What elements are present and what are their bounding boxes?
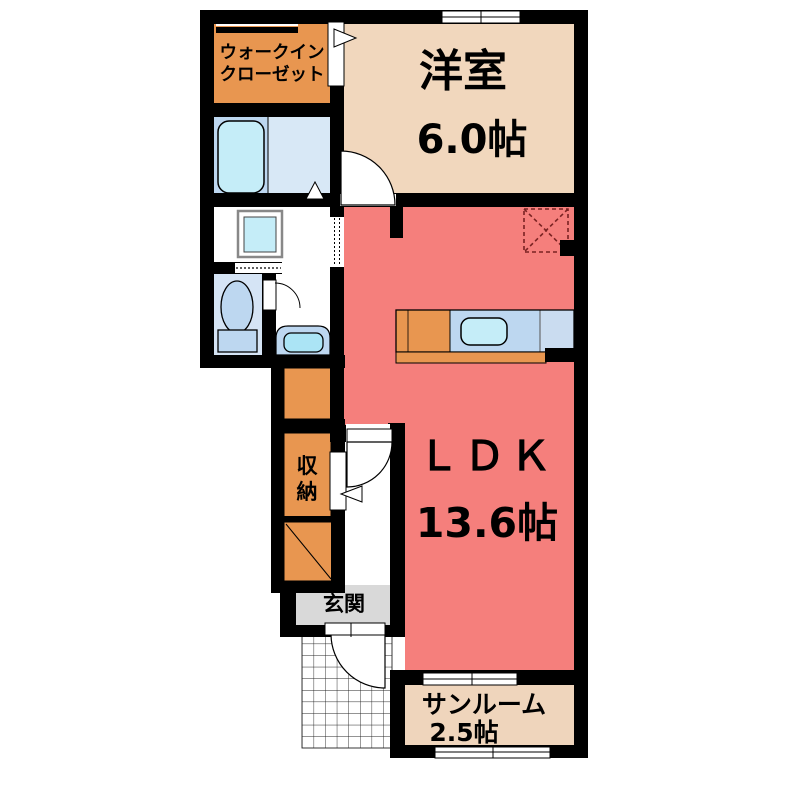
storage-label-char2: 納 [297, 480, 318, 504]
floor-plan-svg: ウォークイン クローゼット 洋室 6.0帖 ＬＤＫ 13.6帖 サンルーム 2.… [0, 0, 800, 800]
western-room-label: 洋室 [419, 46, 507, 97]
bathroom [214, 117, 330, 193]
storage-label-char1: 収 [297, 454, 319, 478]
window-western-top [442, 11, 520, 23]
ldk-size: 13.6帖 [416, 499, 558, 547]
ldk-label: ＬＤＫ [418, 432, 556, 480]
window-sunroom-top [423, 673, 517, 685]
washbasin-icon [276, 326, 330, 355]
floor-plan: ウォークイン クローゼット 洋室 6.0帖 ＬＤＫ 13.6帖 サンルーム 2.… [0, 0, 800, 800]
window-sunroom-bottom [435, 747, 550, 758]
western-room-size: 6.0帖 [417, 117, 528, 163]
washing-machine-icon [238, 211, 282, 257]
sunroom-size: 2.5帖 [429, 718, 498, 747]
shoe-cabinet [284, 522, 333, 581]
ldk-washroom-folding-door [330, 217, 344, 267]
sunroom-label: サンルーム [422, 690, 546, 719]
room-walk-in-closet [214, 24, 330, 103]
bathtub-icon [218, 121, 264, 193]
toilet-icon [221, 281, 253, 333]
walk-in-closet-label-line2: クローゼット [220, 64, 325, 85]
washroom-folding-door [235, 263, 282, 273]
sink-icon [461, 318, 507, 345]
walk-in-closet-label-line1: ウォークイン [220, 43, 325, 63]
entrance-label: 玄関 [323, 592, 365, 616]
toilet-room [214, 274, 262, 355]
closet-box-upper [284, 368, 333, 419]
